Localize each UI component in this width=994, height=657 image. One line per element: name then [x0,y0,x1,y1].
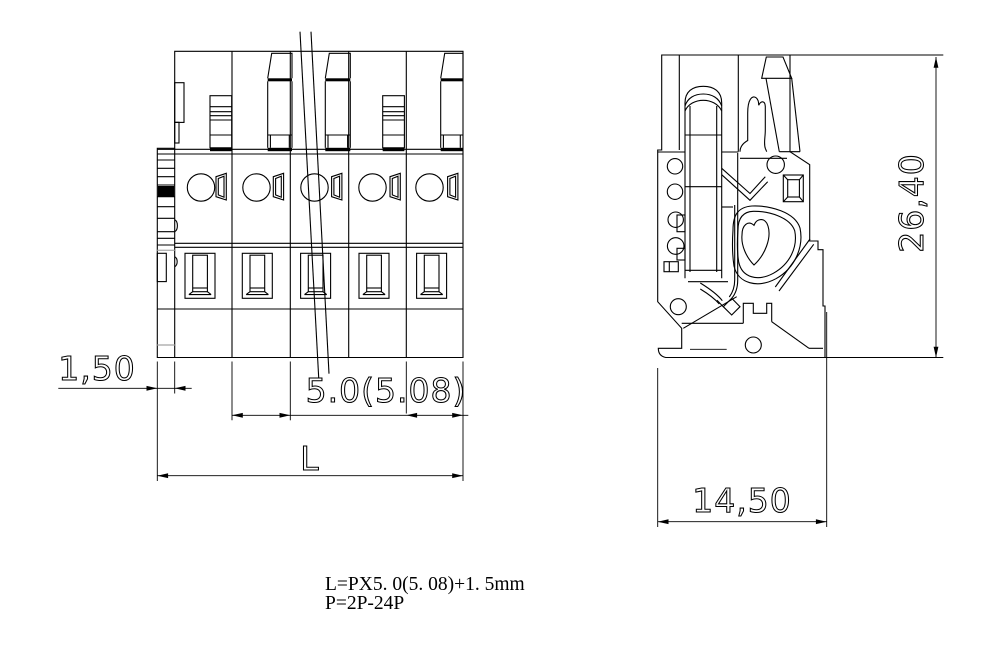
dim-text-overall-depth: 14,50 [692,481,791,520]
dim-text-pitch: 5.0(5.08) [306,371,467,410]
drawing-notes: L=PX5. 0(5. 08)+1. 5mm P=2P-24P [325,574,525,614]
note-pole-range: P=2P-24P [325,593,404,614]
dim-text-overall-height: 26,40 [892,153,931,252]
side-outline [658,55,825,358]
front-cell-dividers [232,51,406,357]
technical-drawing-page: 1,50 5.0(5.08) L 26,40 [0,0,994,657]
front-view [157,32,463,378]
dim-total-length: L [157,439,463,478]
dim-text-left-offset: 1,50 [58,349,135,388]
dim-left-offset: 1,50 [58,349,191,391]
side-view [658,55,825,358]
note-length-formula: L=PX5. 0(5. 08)+1. 5mm [325,574,525,595]
break-line [300,32,329,378]
front-plug-slots [185,253,447,298]
front-buttons [210,96,404,152]
dimensions: 1,50 5.0(5.08) L 26,40 [58,55,943,527]
dim-overall-height: 26,40 [892,57,938,358]
side-lever [740,57,800,152]
front-wire-ports [187,173,458,201]
front-side-latch-ladder [157,83,184,345]
side-square-window [783,175,803,202]
dim-overall-depth: 14,50 [658,481,827,524]
side-spring-clamp [700,153,813,315]
side-base-details [664,262,823,350]
technical-drawing: 1,50 5.0(5.08) L 26,40 [0,0,994,657]
dim-text-total-length: L [300,439,319,478]
side-plunger [677,86,728,281]
front-levers [268,53,463,151]
extension-lines [157,55,943,527]
dim-pitch: 5.0(5.08) [232,371,468,418]
front-outline [157,51,463,357]
